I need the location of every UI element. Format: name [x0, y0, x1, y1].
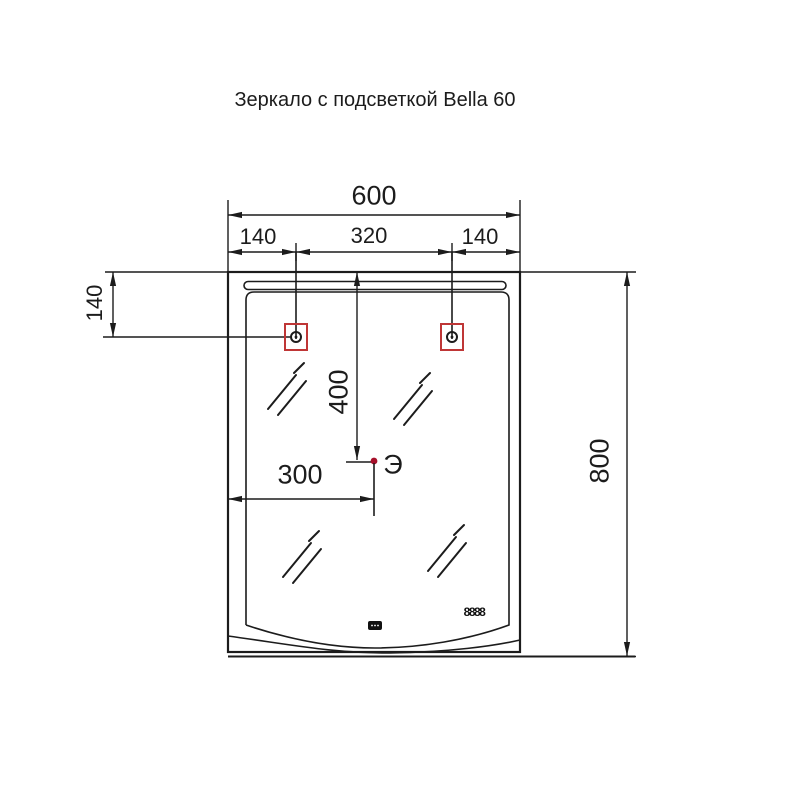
dim-label-total-width: 600 — [351, 183, 396, 210]
drawing-canvas: Зеркало с подсветкой Bella 60 600 140 32… — [0, 0, 789, 800]
dim-label-total-height: 800 — [587, 438, 614, 483]
drawing-title: Зеркало с подсветкой Bella 60 — [234, 90, 515, 110]
mount-point-icon — [285, 252, 307, 350]
mirror-shine-icon — [283, 531, 321, 583]
dim-label-mount-span: 320 — [351, 225, 388, 247]
dim-total-height — [520, 272, 636, 657]
dimension-drawing — [0, 0, 789, 800]
clock-display: 8888 — [464, 606, 485, 618]
mirror-shine-icon — [428, 525, 466, 577]
dim-label-mount-left-offset: 140 — [240, 226, 277, 248]
dim-label-mount-top-offset: 140 — [84, 285, 106, 322]
power-dot-icon — [371, 458, 378, 516]
mount-point-icon — [441, 252, 463, 350]
dim-power-from-top — [346, 272, 372, 462]
dim-label-mount-right-offset: 140 — [462, 226, 499, 248]
bottom-wave — [228, 636, 520, 653]
mirror-shine-icon — [394, 373, 432, 425]
touch-sensor-icon — [368, 621, 382, 630]
light-strip — [244, 282, 506, 290]
dim-label-power-from-top: 400 — [326, 369, 353, 414]
dim-label-power-from-left: 300 — [277, 462, 322, 489]
mirror-shine-icon — [268, 363, 306, 415]
power-point-label: Э — [383, 452, 402, 479]
